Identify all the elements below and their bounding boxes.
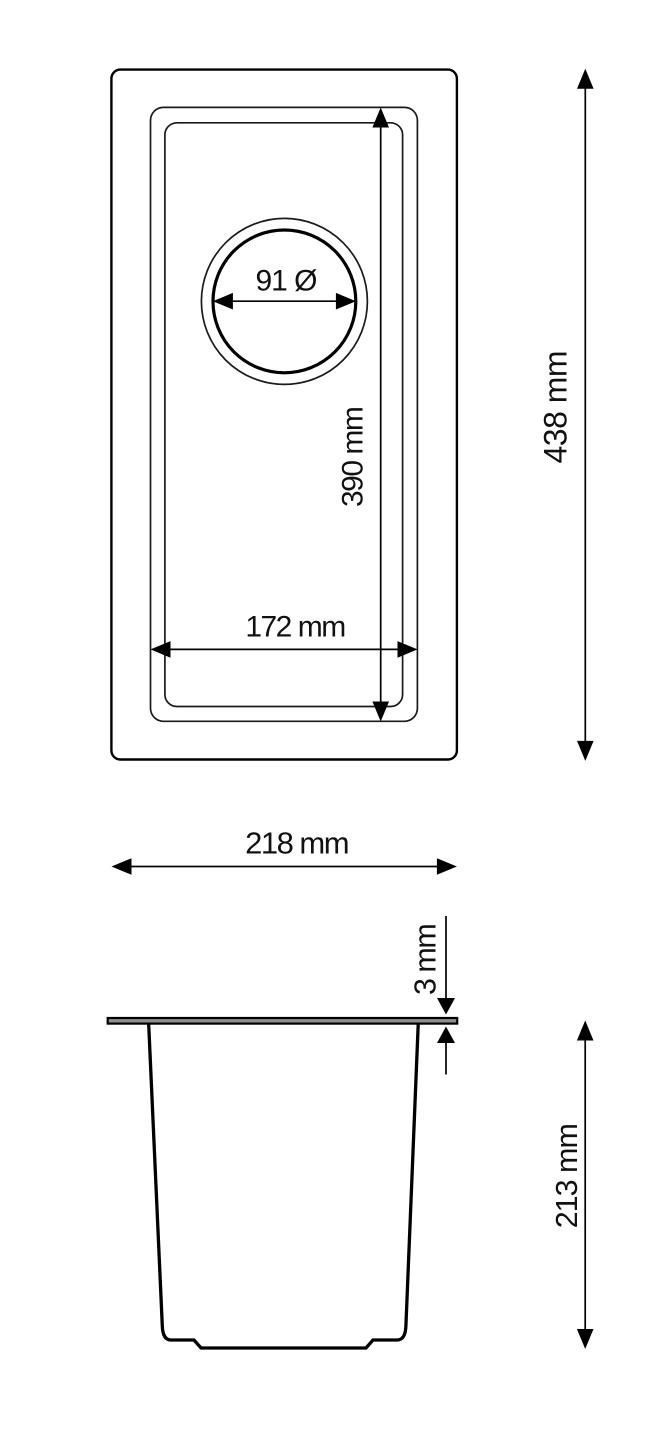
svg-text:218 mm: 218 mm	[245, 825, 348, 860]
svg-text:438 mm: 438 mm	[538, 351, 574, 464]
svg-text:91 Ø: 91 Ø	[255, 265, 317, 298]
svg-text:3 mm: 3 mm	[409, 925, 443, 995]
svg-text:390 mm: 390 mm	[336, 407, 369, 507]
svg-text:172 mm: 172 mm	[245, 610, 345, 643]
svg-text:213 mm: 213 mm	[550, 1124, 584, 1228]
